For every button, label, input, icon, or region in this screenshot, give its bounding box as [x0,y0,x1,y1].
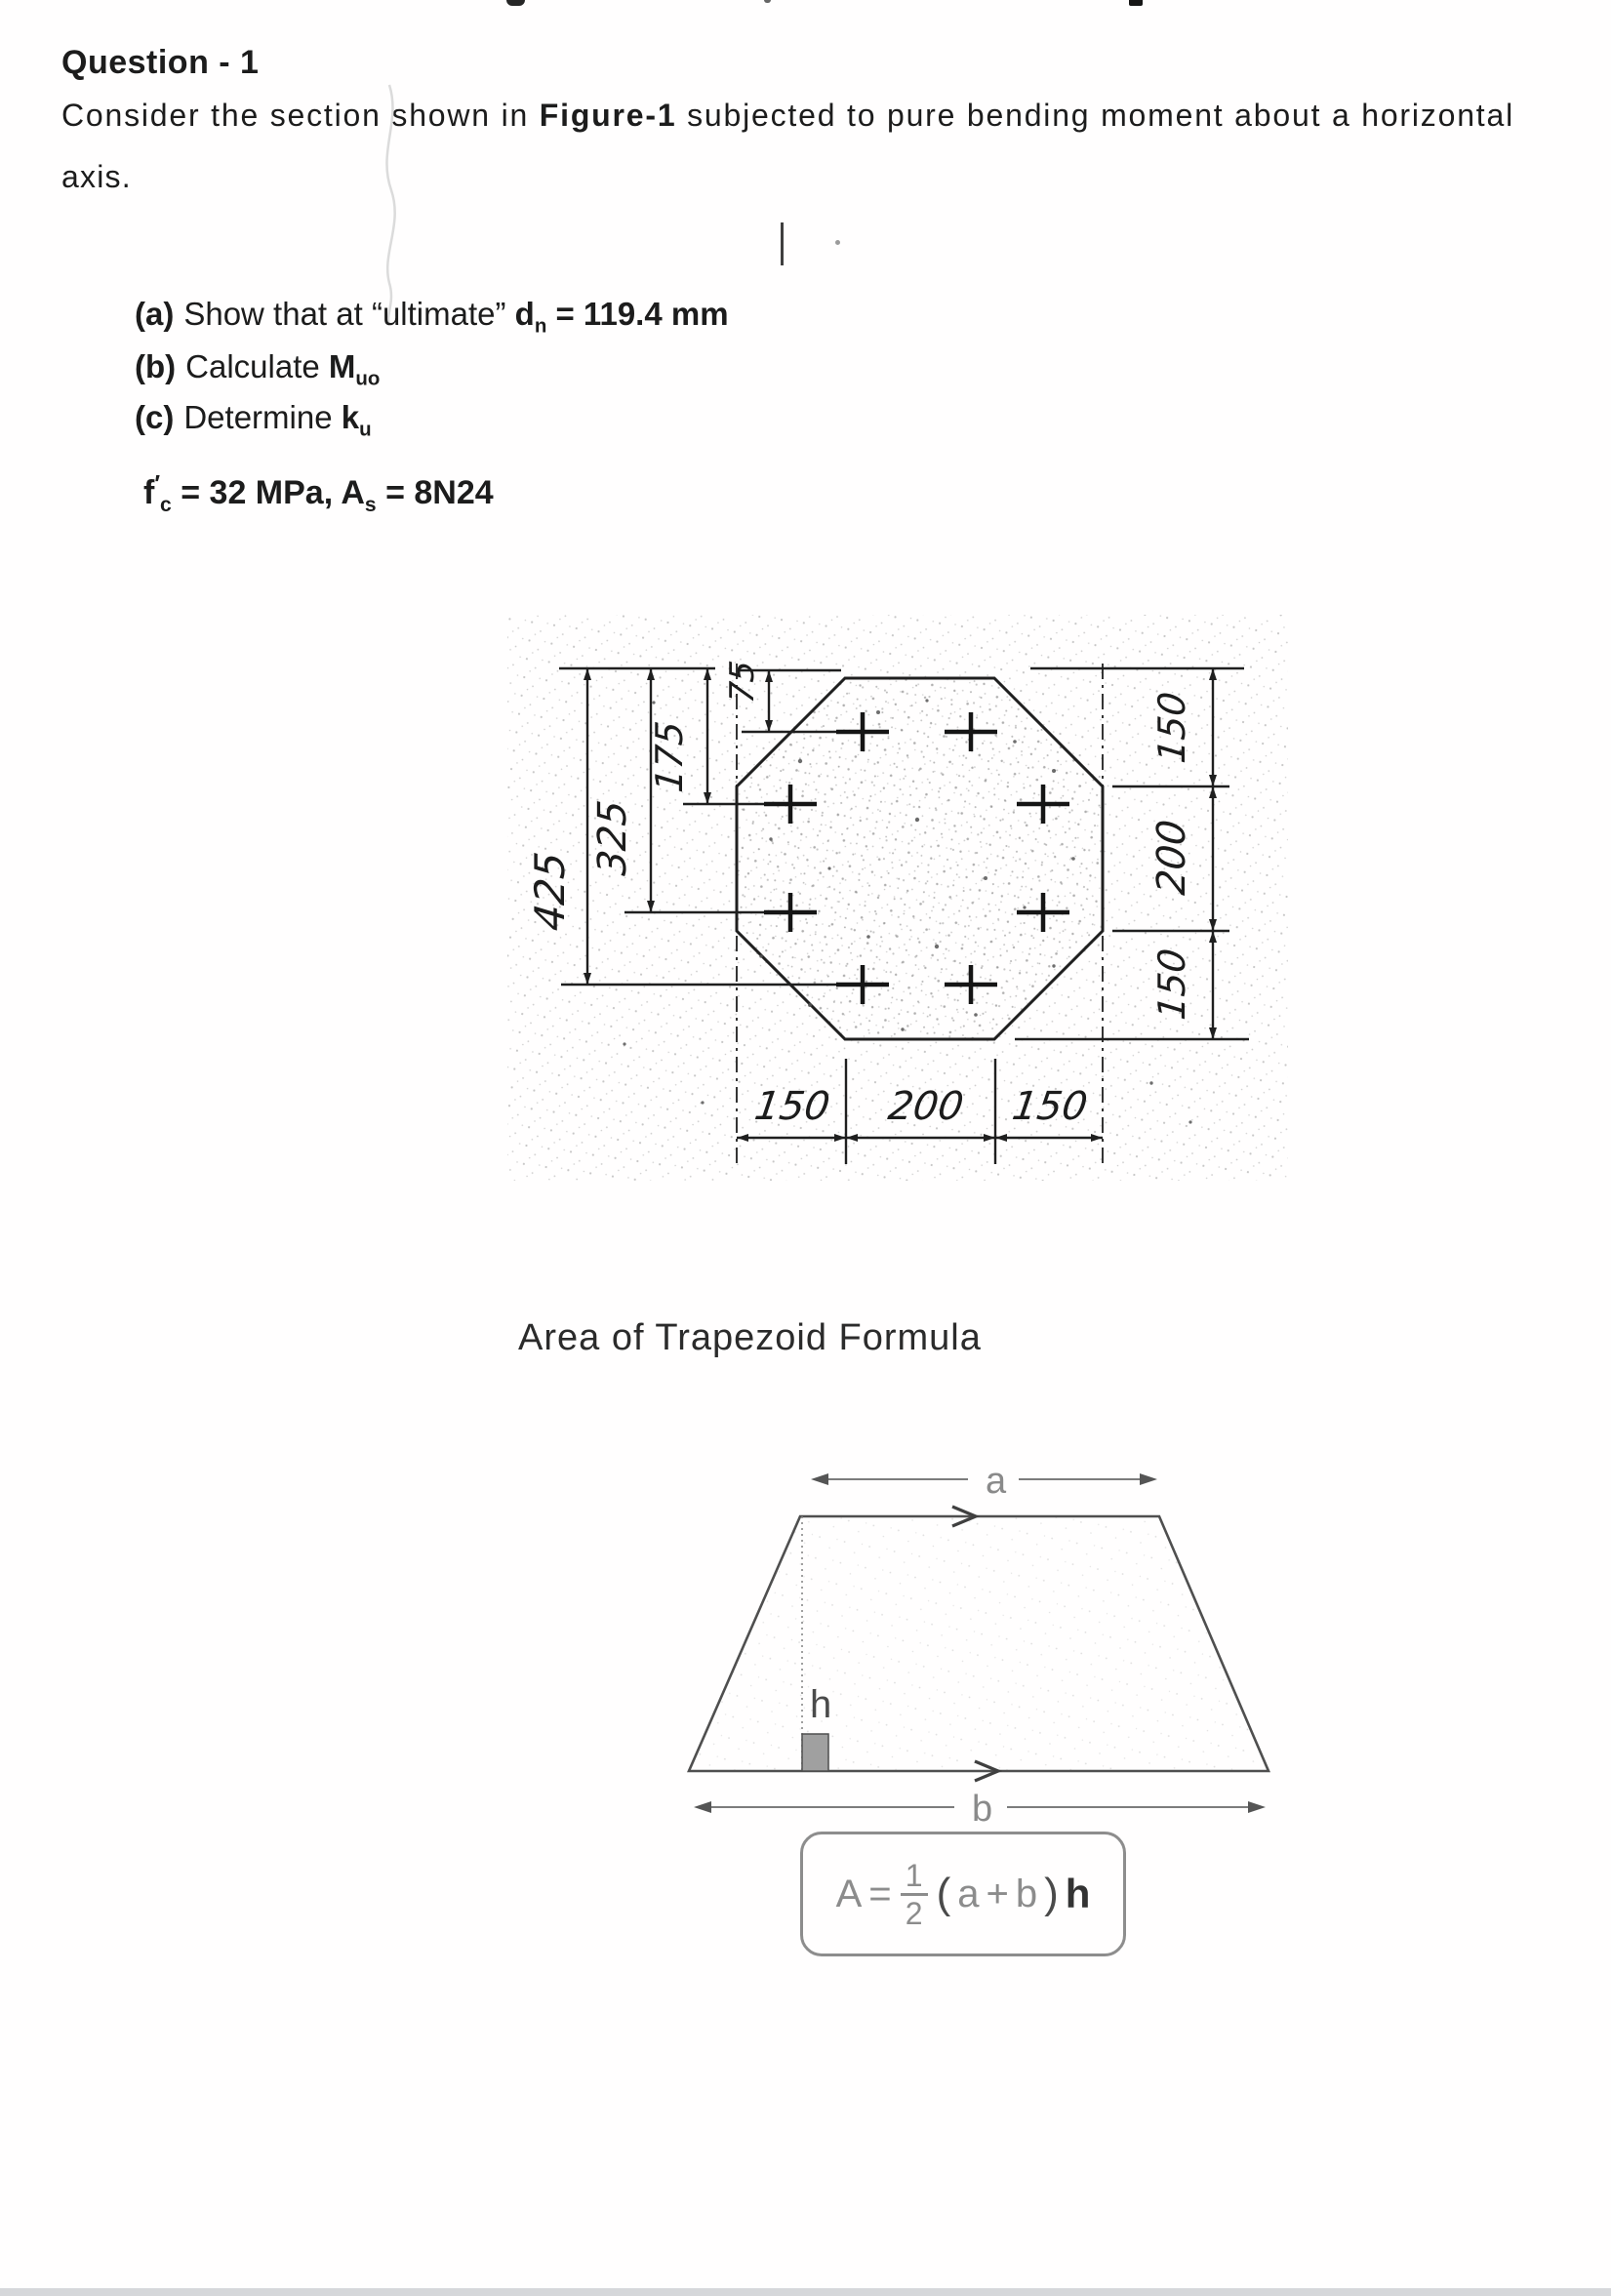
question-title: Question - 1 [61,44,259,82]
right-angle-marker [802,1734,828,1771]
part-b: (b)Calculate Muo [135,348,380,391]
dim-label-bottom-150-left: 150 [751,1084,832,1129]
label-h: h [810,1683,831,1726]
formula-equals: = [868,1873,891,1916]
paragraph-text: Consider the section shown in [61,98,540,133]
formula-plus: + [987,1873,1009,1916]
part-a-text: Show that at “ultimate” [183,296,514,332]
dim-label-325: 325 [590,798,635,877]
scanned-question-page: Question - 1 Consider the section shown … [0,0,1611,2296]
dim-label-right-150-bottom: 150 [1150,947,1193,1022]
label-a: a [986,1461,1007,1502]
variable-muo-subscript: uo [355,368,380,390]
trapezoid-outline [689,1516,1269,1771]
part-b-label: (b) [135,348,176,384]
dim-label-75: 75 [723,659,762,705]
scan-tick-artifact [781,222,784,265]
figure-reference: Figure-1 [540,98,677,133]
dim-label-175: 175 [648,719,691,794]
variable-dn: d [515,296,535,332]
dim-label-bottom-150-right: 150 [1009,1084,1090,1129]
scan-dot-artifact [835,240,840,245]
label-b: b [972,1789,992,1830]
dim-label-right-150-top: 150 [1150,690,1193,765]
part-c-text: Determine [183,399,341,435]
cutoff-text-fragment [1129,0,1143,6]
question-paragraph-line1: Consider the section shown in Figure-1 s… [61,98,1611,134]
formula-a: a [957,1873,979,1916]
part-b-text: Calculate [185,348,329,384]
as-symbol: A [341,474,365,511]
trapezoid-formula-box: A = 1 2 ( a + b ) h [800,1832,1126,1956]
formula-open-paren: ( [937,1870,951,1918]
dim-label-bottom-200: 200 [885,1084,966,1129]
formula-A: A [836,1873,863,1916]
variable-muo: M [329,348,356,384]
formula-h: h [1066,1871,1091,1917]
variable-dn-subscript: n [535,315,546,338]
dim-label-425: 425 [526,850,574,933]
fc-symbol: f [143,474,154,511]
page-bottom-bar [0,2288,1611,2296]
trapezoid-diagram: a h b [605,1425,1308,1834]
fc-value: = 32 MPa, [172,474,342,511]
material-properties: f′c = 32 MPa, As = 8N24 [143,474,494,517]
dim-label-right-200: 200 [1149,818,1194,897]
part-c: (c)Determine ku [135,399,372,442]
as-subscript: s [365,494,377,516]
variable-ku: k [342,399,359,435]
formula-fraction: 1 2 [901,1860,928,1929]
variable-ku-subscript: u [359,419,371,441]
question-paragraph-line2: axis. [61,159,132,195]
formula-close-paren: ) [1044,1870,1059,1918]
part-a: (a)Show that at “ultimate” dn = 119.4 mm [135,296,729,339]
figure1-cross-section: 425 325 175 75 150 200 150 150 200 150 [507,615,1288,1181]
part-a-label: (a) [135,296,174,332]
trapezoid-section-title: Area of Trapezoid Formula [518,1317,982,1359]
scan-smudge-artifact [376,83,434,327]
formula-b: b [1016,1873,1037,1916]
cutoff-text-fragment [764,0,771,3]
fraction-denominator: 2 [906,1898,923,1929]
fc-subscript: c [160,494,172,516]
cutoff-text-fragment [506,0,525,6]
as-value: = 8N24 [377,474,494,511]
paragraph-text: subjected to pure bending moment about a… [676,98,1514,133]
fraction-numerator: 1 [906,1860,923,1891]
part-a-value: = 119.4 mm [546,296,728,332]
part-c-label: (c) [135,399,174,435]
